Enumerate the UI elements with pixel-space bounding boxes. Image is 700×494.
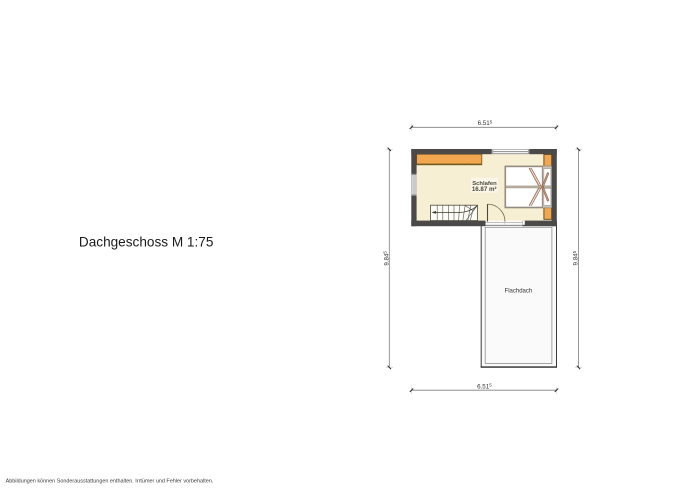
svg-text:16.87 m²: 16.87 m² [472, 186, 497, 193]
svg-text:Abbildungen können Sonderausst: Abbildungen können Sonderausstattungen e… [6, 479, 214, 485]
svg-text:Dachgeschoss M 1:75: Dachgeschoss M 1:75 [79, 234, 214, 249]
svg-text:Flachdach: Flachdach [505, 289, 533, 295]
